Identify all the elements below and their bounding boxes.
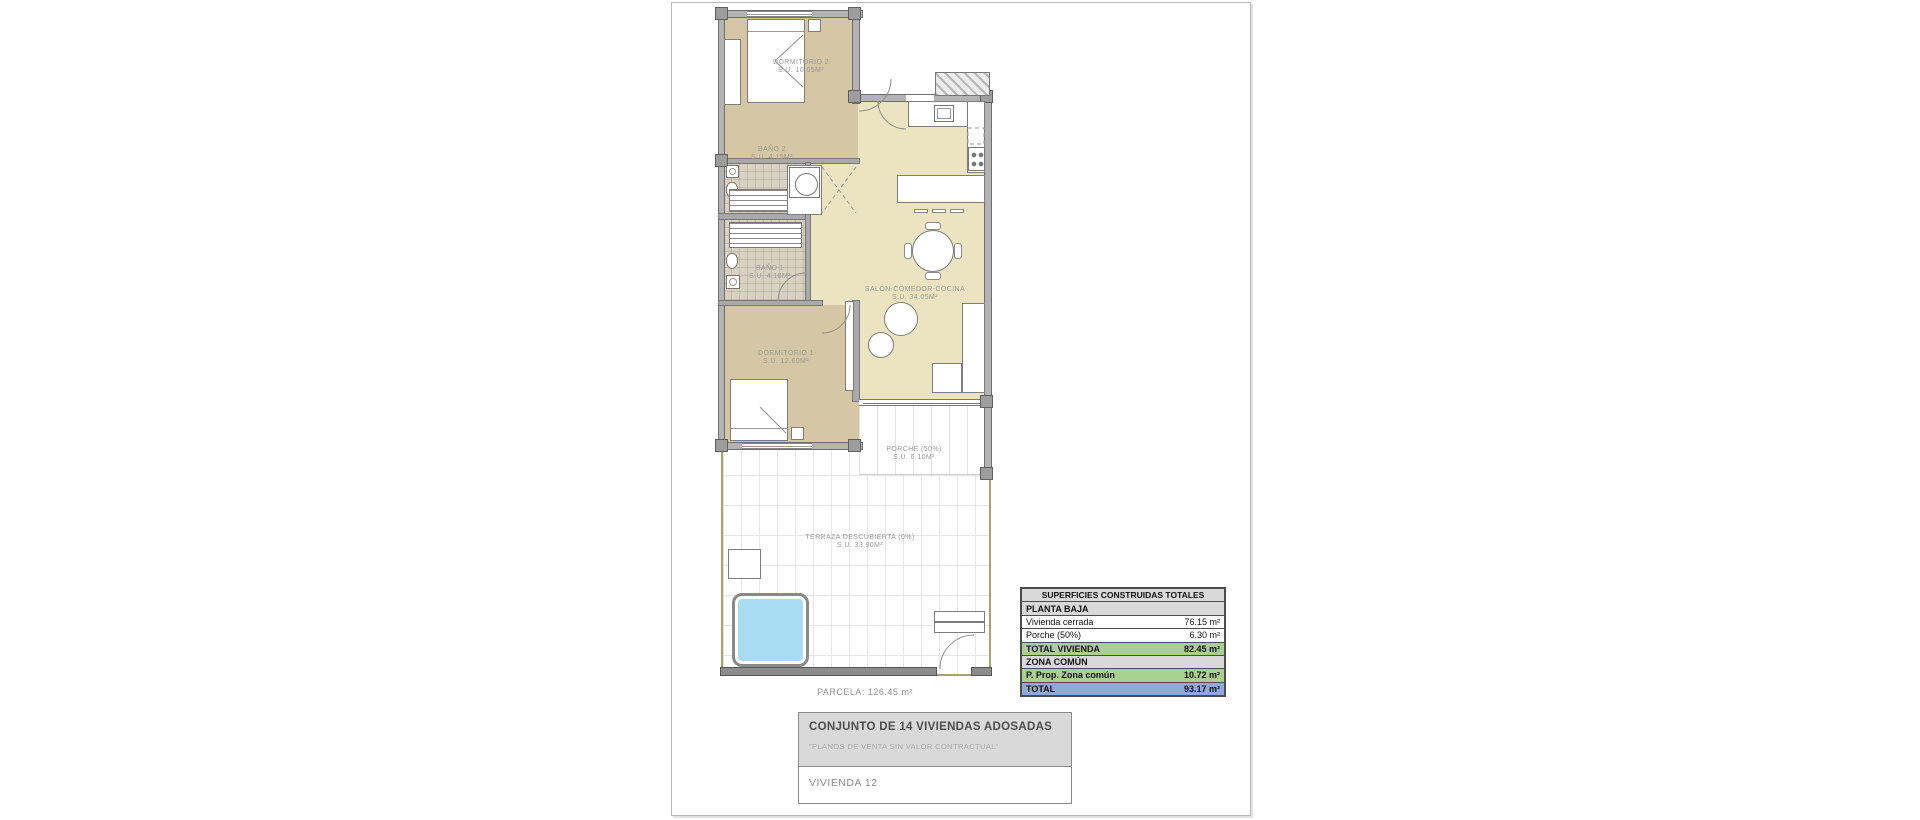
surfaces-table-title: SUPERFICIES CONSTRUIDAS TOTALES xyxy=(1042,590,1205,600)
pier xyxy=(981,396,992,407)
coffee-table-small xyxy=(868,332,894,358)
room-area: S.U. 6.10m² xyxy=(893,454,935,461)
room-area: S.U. 34.05m² xyxy=(892,294,938,301)
parcela-label: PARCELA: 126.45 m² xyxy=(817,687,913,697)
pier xyxy=(716,8,727,19)
disclaimer-text: "PLANOS DE VENTA SIN VALOR CONTRACTUAL" xyxy=(809,742,1061,751)
bedroom1-window xyxy=(742,443,812,449)
exterior-steps xyxy=(934,611,985,622)
room-area: S.U. 12.60m² xyxy=(763,358,809,365)
room-area: S.U. 10.05m² xyxy=(778,67,824,74)
pier xyxy=(849,91,860,102)
room-name: SALÓN-COMEDOR-COCINA xyxy=(865,286,965,293)
project-title: CONJUNTO DE 14 VIVIENDAS ADOSADAS xyxy=(809,721,1061,733)
bedroom1-nightstand xyxy=(791,427,804,440)
room-area: S.U. 33.90m² xyxy=(837,542,883,549)
bar-stool xyxy=(914,209,928,213)
bedroom2-closet xyxy=(724,39,741,105)
room-label-bano2: BAÑO 2 S.U. 4.15m² xyxy=(751,146,793,162)
row-label: TOTAL xyxy=(1026,684,1160,694)
wall-right xyxy=(985,95,991,477)
room-area: S.U. 4.10m² xyxy=(749,273,791,280)
title-block-header: CONJUNTO DE 14 VIVIENDAS ADOSADAS "PLANO… xyxy=(799,713,1071,767)
pier xyxy=(716,440,727,451)
title-block: CONJUNTO DE 14 VIVIENDAS ADOSADAS "PLANO… xyxy=(798,712,1072,804)
room-area: S.U. 4.15m² xyxy=(751,154,793,161)
room-name: PORCHE (50%) xyxy=(886,446,941,453)
room-name: BAÑO 2 xyxy=(758,146,786,153)
wall-terraza-bottom xyxy=(721,668,936,675)
row-label: P. Prop. Zona común xyxy=(1026,670,1160,680)
dining-table xyxy=(912,230,954,272)
coffee-table-large xyxy=(884,302,918,336)
wall-terraza-bottom-stub xyxy=(972,668,991,675)
dining-chair xyxy=(904,243,912,259)
room-label-terraza: TERRAZA DESCUBIERTA (0%) S.U. 33.90m² xyxy=(805,534,914,550)
entrance-landing xyxy=(936,73,989,95)
kitchen-stove xyxy=(968,147,985,171)
pier xyxy=(981,468,992,479)
bedroom2-window xyxy=(747,11,812,17)
table-row-p-prop: P. Prop. Zona común 10.72 m² xyxy=(1022,668,1224,681)
room-label-salon: SALÓN-COMEDOR-COCINA S.U. 34.05m² xyxy=(865,286,965,302)
surfaces-table: SUPERFICIES CONSTRUIDAS TOTALES PLANTA B… xyxy=(1020,587,1226,697)
kitchen-sink xyxy=(934,105,954,122)
terraza-storage xyxy=(728,549,761,579)
room-name: DORMITORIO 1 xyxy=(758,350,814,357)
washing-machine xyxy=(789,167,820,198)
row-label: Vivienda cerrada xyxy=(1026,617,1160,627)
room-name: BAÑO 1 xyxy=(756,265,784,272)
room-label-bano1: BAÑO 1 S.U. 4.10m² xyxy=(749,265,791,281)
row-value: 82.45 m² xyxy=(1160,644,1220,654)
wall-bedroom1-top xyxy=(719,301,822,305)
bedroom2-nightstand xyxy=(808,19,821,32)
row-value: 10.72 m² xyxy=(1160,670,1220,680)
bedroom1-bed xyxy=(730,379,788,441)
bath2-sink xyxy=(726,165,739,178)
porch-paving xyxy=(859,405,985,475)
wall-bedroom2-right xyxy=(853,11,859,103)
room-name: TERRAZA DESCUBIERTA (0%) xyxy=(805,534,914,541)
table-row-vivienda-cerrada: Vivienda cerrada 76.15 m² xyxy=(1022,615,1224,628)
row-value: 93.17 m² xyxy=(1160,684,1220,694)
table-row-total-vivienda: TOTAL VIVIENDA 82.45 m² xyxy=(1022,642,1224,655)
bath1-shower xyxy=(729,222,802,248)
row-label: ZONA COMÚN xyxy=(1026,657,1160,667)
tv-unit xyxy=(845,301,854,391)
row-label: Porche (50%) xyxy=(1026,630,1160,640)
sliding-door-porch xyxy=(859,399,985,406)
bath1-toilet xyxy=(726,253,738,269)
dining-chair xyxy=(925,222,941,230)
row-value: 76.15 m² xyxy=(1160,617,1220,627)
surfaces-table-header: SUPERFICIES CONSTRUIDAS TOTALES xyxy=(1022,589,1224,601)
dining-chair xyxy=(954,243,962,259)
room-label-dormitorio2: DORMITORIO 2 S.U. 10.05m² xyxy=(773,59,829,75)
pool xyxy=(732,593,809,667)
table-row-porche: Porche (50%) 6.30 m² xyxy=(1022,628,1224,641)
row-value: 6.30 m² xyxy=(1160,630,1220,640)
table-row-planta-baja: PLANTA BAJA xyxy=(1022,601,1224,614)
kitchen-island xyxy=(897,175,985,203)
bath1-sink xyxy=(726,275,740,289)
drawing-sheet: DORMITORIO 2 S.U. 10.05m² BAÑO 2 S.U. 4.… xyxy=(671,2,1251,816)
pier xyxy=(849,8,860,19)
row-label: PLANTA BAJA xyxy=(1026,604,1160,614)
unit-label: VIVIENDA 12 xyxy=(799,767,1071,799)
bar-stool xyxy=(950,209,964,213)
room-label-porche: PORCHE (50%) S.U. 6.10m² xyxy=(886,446,941,462)
room-label-dormitorio1: DORMITORIO 1 S.U. 12.60m² xyxy=(758,350,814,366)
room-name: DORMITORIO 2 xyxy=(773,59,829,66)
row-label: TOTAL VIVIENDA xyxy=(1026,644,1160,654)
dining-chair xyxy=(925,272,941,280)
sofa-long xyxy=(962,303,985,393)
pier xyxy=(849,440,860,451)
bar-stool xyxy=(932,209,946,213)
exterior-steps xyxy=(934,622,985,633)
sofa-chaise xyxy=(932,363,962,393)
table-row-zona-comun: ZONA COMÚN xyxy=(1022,655,1224,668)
table-row-total: TOTAL 93.17 m² xyxy=(1022,682,1224,695)
